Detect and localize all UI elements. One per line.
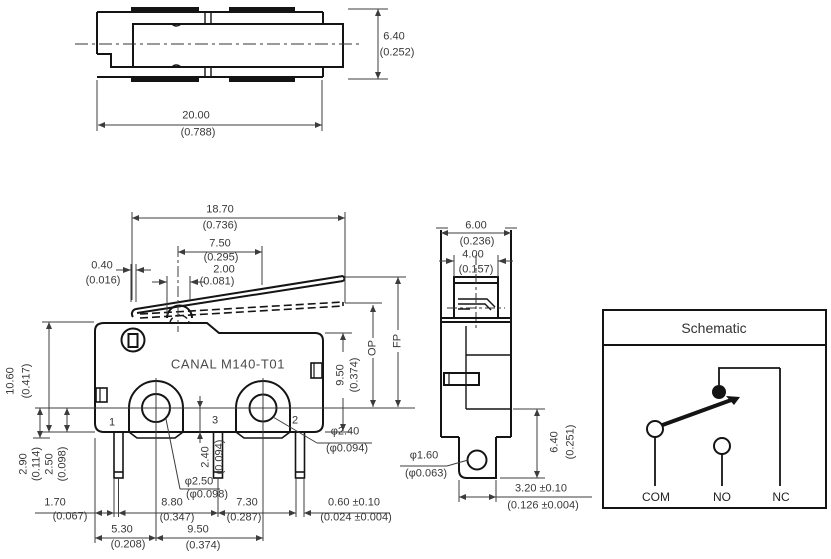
top-view-drawing bbox=[75, 9, 388, 131]
dim-320-in: (0.126 ±0.004) bbox=[507, 501, 578, 512]
dim-290-in: (0.114) bbox=[32, 447, 43, 481]
dim-1060-mm: 10.60 bbox=[6, 367, 17, 395]
schematic-com-label: COM bbox=[642, 491, 670, 503]
dim-200-mm: 2.00 bbox=[213, 265, 234, 276]
dim-950-right-in: (0.374) bbox=[350, 358, 361, 393]
dim-530-in: (0.208) bbox=[111, 540, 146, 551]
dim-950-right-mm: 9.50 bbox=[336, 364, 347, 385]
fp-label: FP bbox=[393, 334, 404, 348]
dim-1870-mm: 18.70 bbox=[206, 205, 234, 216]
dim-top-height-mm: 6.40 bbox=[383, 32, 404, 43]
dim-1870-in: (0.736) bbox=[203, 221, 238, 232]
dim-170-in: (0.067) bbox=[53, 512, 88, 523]
dim-040-in: (0.016) bbox=[86, 276, 121, 287]
op-label: OP bbox=[368, 340, 379, 356]
dim-top-height-in: (0.252) bbox=[380, 48, 415, 59]
dim-400-in: (0.157) bbox=[459, 265, 494, 276]
technical-drawing-canvas: 6.40 (0.252) 20.00 (0.788) 18.70 (0.736)… bbox=[0, 0, 831, 559]
dim-950-bottom-in: (0.374) bbox=[186, 541, 221, 552]
dim-dia240-in: (φ0.094) bbox=[326, 444, 368, 455]
dim-dia250-in: (φ0.098) bbox=[186, 490, 228, 501]
dim-top-length-in: (0.788) bbox=[181, 128, 216, 139]
dim-060-mm: 0.60 ±0.10 bbox=[328, 498, 380, 509]
dim-170-mm: 1.70 bbox=[44, 498, 65, 509]
dim-060-in: (0.024 ±0.004) bbox=[320, 513, 391, 524]
dim-250-mm: 2.50 bbox=[45, 453, 56, 474]
dim-200-in: (0.081) bbox=[200, 277, 235, 288]
dim-640-side-mm: 6.40 bbox=[550, 431, 561, 452]
dim-top-length-mm: 20.00 bbox=[182, 111, 210, 122]
dim-400-mm: 4.00 bbox=[462, 250, 483, 261]
dim-320-mm: 3.20 ±0.10 bbox=[515, 484, 567, 495]
dim-dia160-mm: φ1.60 bbox=[410, 451, 439, 462]
dim-880-mm: 8.80 bbox=[161, 498, 182, 509]
terminal-3-label: 3 bbox=[212, 416, 218, 427]
product-label: CANAL M140-T01 bbox=[171, 358, 285, 371]
dim-290-mm: 2.90 bbox=[19, 453, 30, 474]
dim-1060-in: (0.417) bbox=[22, 364, 33, 399]
schematic-nc-label: NC bbox=[772, 491, 789, 503]
dim-600-mm: 6.00 bbox=[465, 221, 486, 232]
dim-730-in: (0.287) bbox=[227, 513, 262, 524]
dim-880-in: (0.347) bbox=[160, 513, 195, 524]
dim-730-mm: 7.30 bbox=[236, 498, 257, 509]
dim-950-bottom-mm: 9.50 bbox=[187, 525, 208, 536]
dim-530-mm: 5.30 bbox=[111, 525, 132, 536]
dim-dia240-mm: φ2.40 bbox=[331, 427, 360, 438]
dim-750-mm: 7.50 bbox=[209, 239, 230, 250]
dim-250-in: (0.098) bbox=[58, 447, 69, 482]
dim-dia250-mm: φ2.50 bbox=[185, 477, 214, 488]
schematic-title: Schematic bbox=[681, 321, 746, 335]
dim-240-mm: 2.40 bbox=[201, 446, 212, 467]
nc-contact-dot bbox=[712, 385, 726, 399]
com-contact-circle bbox=[647, 421, 663, 437]
dim-600-in: (0.236) bbox=[460, 237, 495, 248]
dim-240-in: (0.094) bbox=[215, 440, 226, 475]
schematic-drawing bbox=[603, 310, 826, 508]
dim-dia160-in: (φ0.063) bbox=[405, 469, 447, 480]
dim-040-mm: 0.40 bbox=[91, 261, 112, 272]
terminal-2-label: 2 bbox=[292, 416, 298, 427]
terminal-1-label: 1 bbox=[109, 418, 115, 429]
schematic-no-label: NO bbox=[713, 491, 731, 503]
dim-640-side-in: (0.251) bbox=[566, 425, 577, 460]
switch-armature bbox=[657, 399, 734, 427]
dim-750-in: (0.295) bbox=[204, 253, 239, 264]
no-contact-circle bbox=[714, 438, 730, 454]
